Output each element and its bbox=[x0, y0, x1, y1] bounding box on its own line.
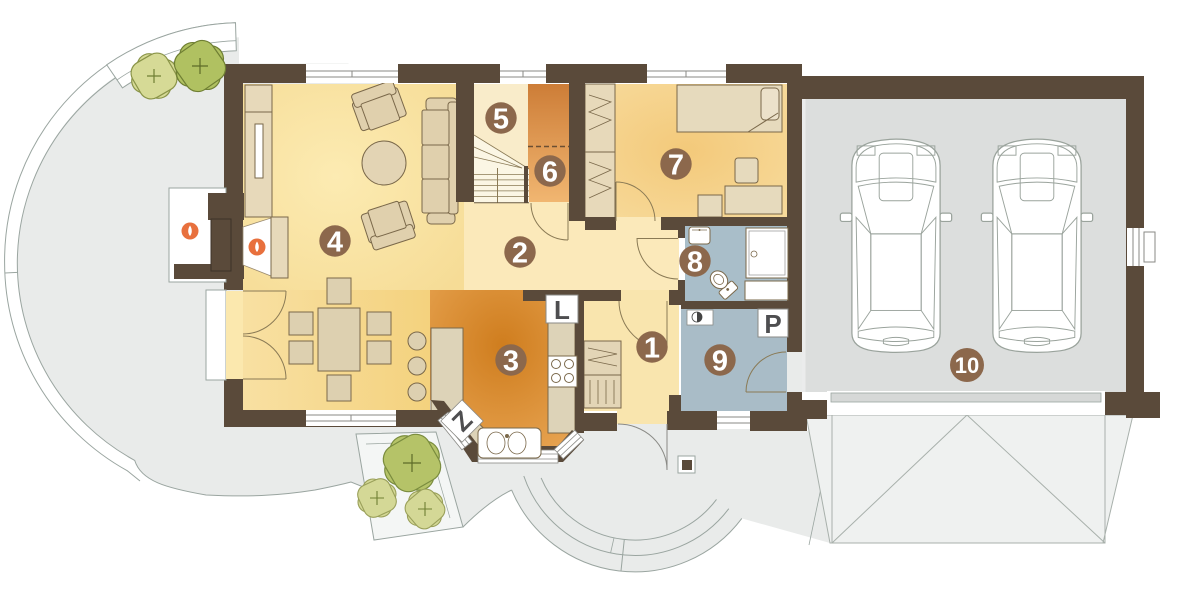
svg-text:3: 3 bbox=[503, 346, 519, 378]
svg-text:5: 5 bbox=[493, 104, 509, 136]
svg-text:10: 10 bbox=[955, 353, 979, 378]
svg-text:4: 4 bbox=[327, 227, 343, 259]
svg-text:7: 7 bbox=[668, 150, 684, 182]
svg-text:8: 8 bbox=[687, 247, 703, 279]
svg-text:1: 1 bbox=[644, 333, 660, 365]
svg-text:P: P bbox=[764, 309, 781, 339]
svg-text:2: 2 bbox=[512, 238, 528, 270]
svg-text:6: 6 bbox=[542, 157, 558, 189]
svg-text:L: L bbox=[554, 295, 570, 325]
svg-text:9: 9 bbox=[712, 346, 728, 378]
